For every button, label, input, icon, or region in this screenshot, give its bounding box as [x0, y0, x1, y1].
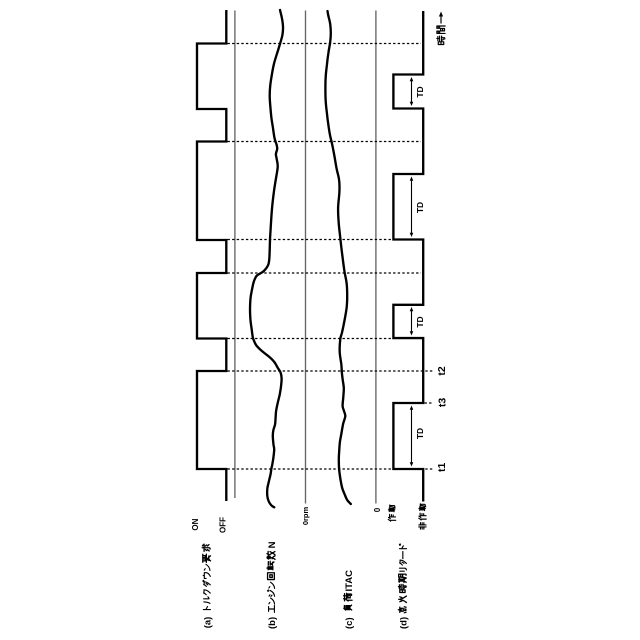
svg-text:TD: TD — [415, 316, 425, 327]
svg-text:0: 0 — [373, 507, 382, 512]
svg-text:TD: TD — [415, 202, 425, 213]
svg-text:ON: ON — [191, 518, 200, 530]
svg-text:t3: t3 — [436, 398, 448, 407]
svg-text:t2: t2 — [436, 366, 448, 375]
svg-text:0rpm: 0rpm — [301, 507, 310, 526]
svg-text:TD: TD — [415, 428, 425, 439]
svg-text:ITAC: ITAC — [344, 570, 355, 592]
svg-text:t1: t1 — [436, 462, 448, 471]
svg-text:(d): (d) — [398, 617, 409, 629]
svg-text:OFF: OFF — [218, 517, 227, 533]
svg-text:(c): (c) — [344, 617, 355, 629]
svg-text:(a): (a) — [202, 617, 213, 629]
svg-text:TD: TD — [415, 86, 425, 97]
svg-text:N: N — [267, 541, 278, 548]
svg-text:(b): (b) — [267, 617, 278, 629]
